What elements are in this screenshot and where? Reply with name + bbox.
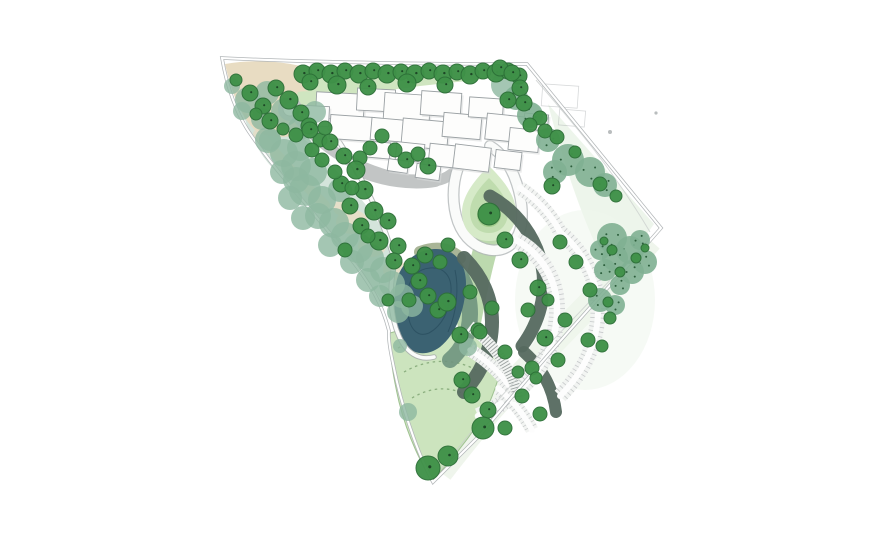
site-plan-page xyxy=(0,0,880,534)
site-plan-canvas xyxy=(0,0,880,534)
survey-specks xyxy=(608,111,658,134)
